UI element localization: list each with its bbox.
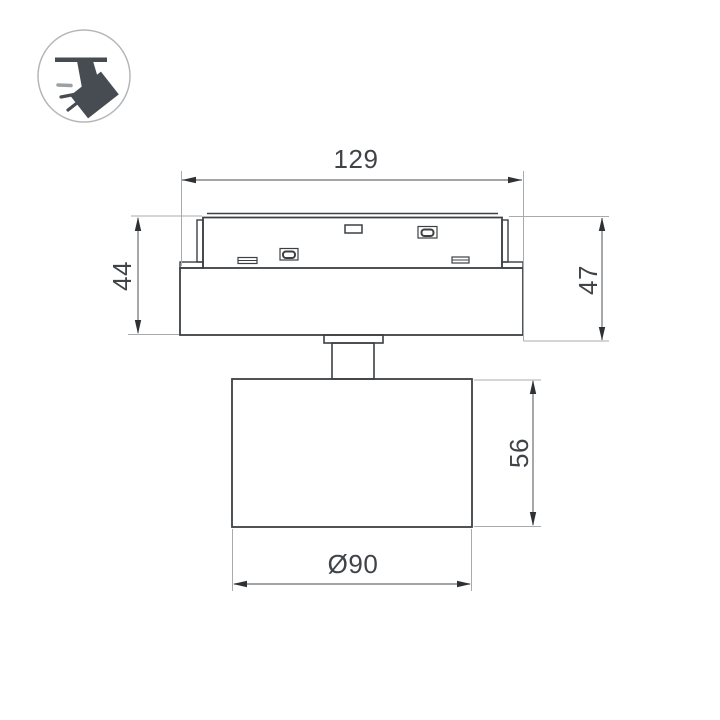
arrow-width-right xyxy=(508,177,522,183)
drawing-canvas: 129 44 47 56 Ø90 xyxy=(0,0,720,720)
arrow-left-bottom xyxy=(135,320,141,334)
arrow-diameter-right xyxy=(457,581,471,587)
dimension-lines xyxy=(138,180,602,584)
technical-drawing: 129 44 47 56 Ø90 xyxy=(0,0,720,720)
adapter-contact-plain xyxy=(345,225,362,233)
arrow-right-top xyxy=(599,218,605,232)
driver-body xyxy=(180,268,523,335)
dim-label-height-right: 47 xyxy=(573,265,603,295)
arrow-left-top xyxy=(135,217,141,231)
dimension-arrows xyxy=(135,177,605,587)
arrow-head-bottom xyxy=(530,512,536,526)
arrow-head-top xyxy=(530,380,536,394)
dim-label-head-height: 56 xyxy=(504,438,534,468)
fixture-outline xyxy=(180,214,523,528)
swivel-collar xyxy=(324,335,383,343)
icon-light-ray-1 xyxy=(58,85,71,86)
arrow-right-bottom xyxy=(599,327,605,341)
arrow-width-left xyxy=(182,177,196,183)
lamp-head-cylinder xyxy=(232,379,472,527)
dim-label-width: 129 xyxy=(334,144,379,174)
extension-lines xyxy=(128,171,609,591)
swivel-stem xyxy=(332,343,374,379)
dim-label-height-left: 44 xyxy=(107,261,137,291)
dim-label-diameter: Ø90 xyxy=(328,549,379,579)
adapter-contact-socket-right-inner xyxy=(422,230,434,237)
track-spotlight-icon xyxy=(38,30,130,122)
arrow-diameter-left xyxy=(233,581,247,587)
adapter-contact-socket-left-inner xyxy=(283,252,295,259)
